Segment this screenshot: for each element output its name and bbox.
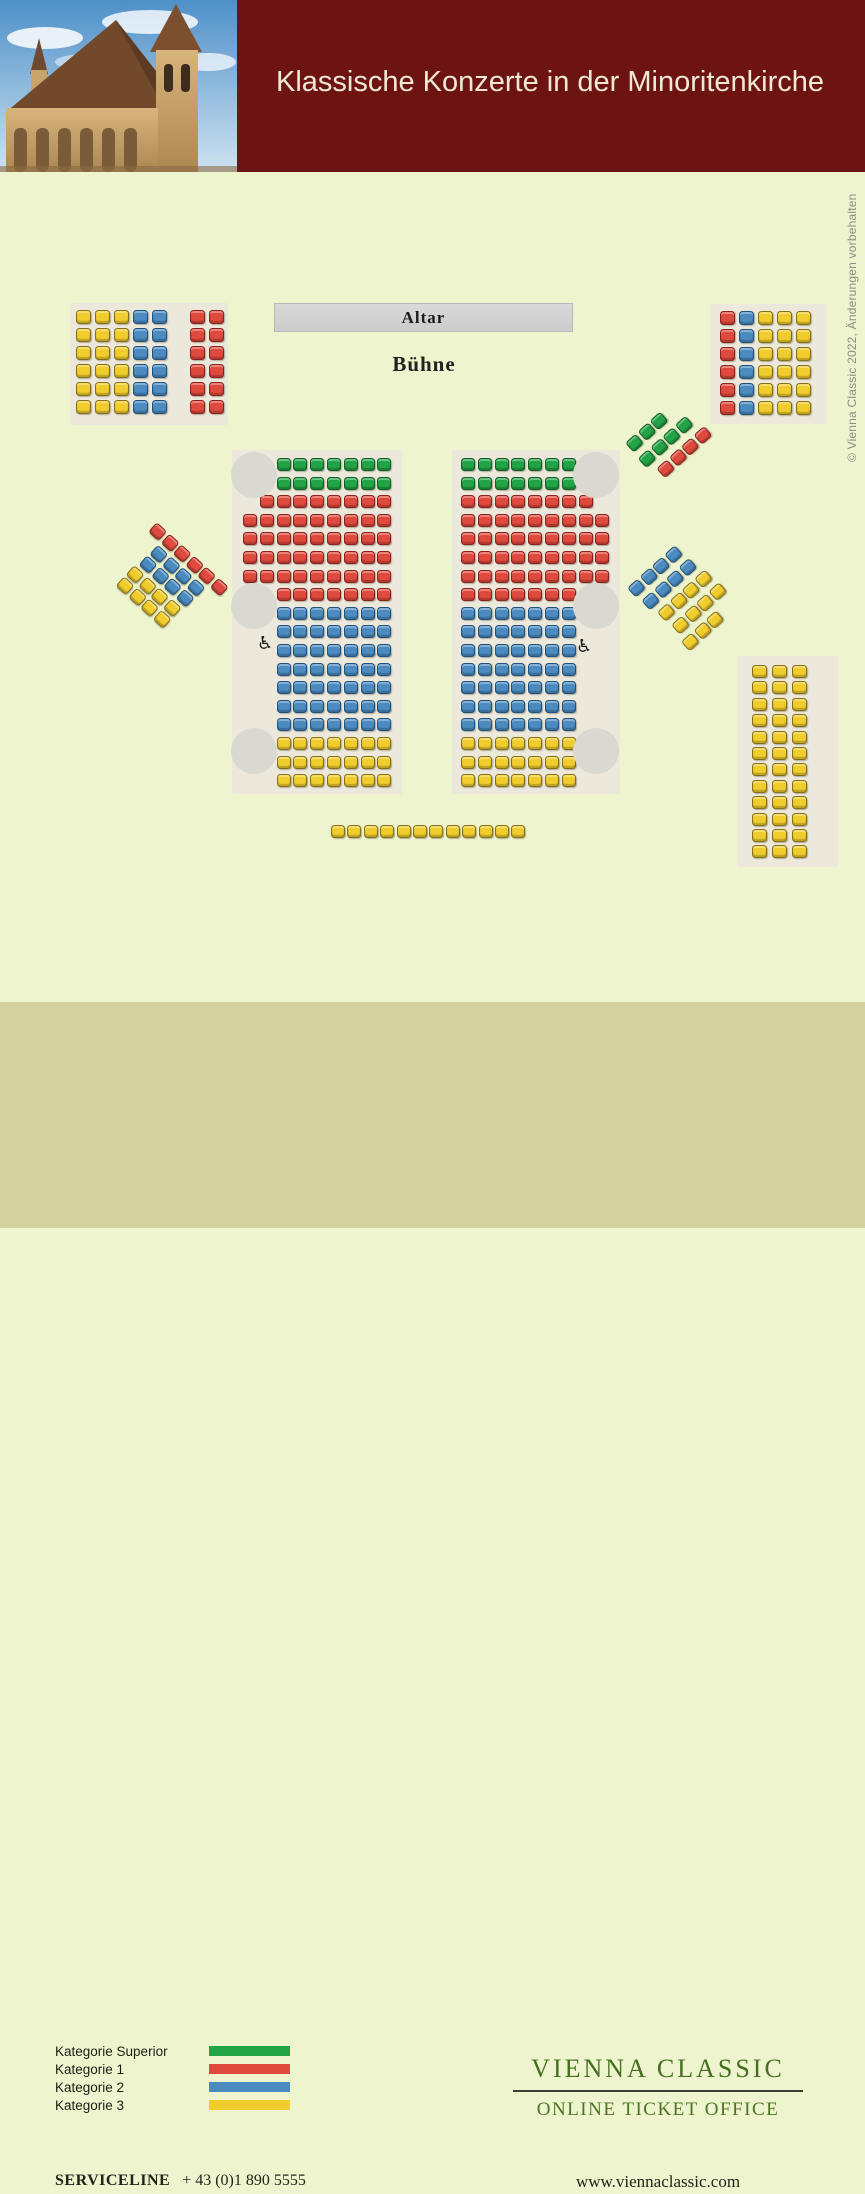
seat-kat2 (461, 700, 475, 713)
seat-kat3 (495, 737, 509, 750)
seat-kat2 (310, 681, 324, 694)
seat-kat3 (758, 401, 773, 415)
seat-kat3 (772, 763, 787, 776)
seat-kat3 (461, 774, 475, 787)
seat-kat2 (133, 328, 148, 342)
seat-kat1 (243, 532, 257, 545)
seat-kat2 (310, 663, 324, 676)
serviceline-label: SERVICELINE (55, 2172, 170, 2189)
seat-kat3 (495, 774, 509, 787)
side-right-diagonal-block (627, 538, 746, 658)
seat-kat1 (579, 532, 593, 545)
seat-kat3 (792, 731, 807, 744)
seat-superior (478, 458, 492, 471)
seat-kat3 (777, 329, 792, 343)
seat-kat3 (752, 845, 767, 858)
seat-kat2 (133, 310, 148, 324)
seat-superior (461, 477, 475, 490)
seat-kat3 (397, 825, 411, 838)
seat-kat2 (528, 700, 542, 713)
seat-kat3 (446, 825, 460, 838)
copyright-note: © Vienna Classic 2022, Änderungen vorbeh… (845, 194, 859, 462)
serviceline: SERVICELINE + 43 (0)1 890 5555 (55, 2172, 306, 2190)
seat-kat3 (796, 383, 811, 397)
seat-kat3 (361, 737, 375, 750)
seat-kat2 (310, 718, 324, 731)
seat-kat1 (260, 514, 274, 527)
seat-kat1 (478, 551, 492, 564)
seat-superior (293, 477, 307, 490)
legend-row-kat2: Kategorie 2 (55, 2078, 290, 2096)
seat-kat3 (752, 796, 767, 809)
seat-kat2 (528, 644, 542, 657)
seat-kat1 (511, 588, 525, 601)
seat-kat2 (152, 400, 167, 414)
seat-kat2 (495, 607, 509, 620)
seat-kat2 (152, 346, 167, 360)
seat-kat1 (361, 532, 375, 545)
seat-kat3 (511, 774, 525, 787)
seat-kat1 (720, 329, 735, 343)
seat-kat2 (344, 718, 358, 731)
seat-kat1 (461, 514, 475, 527)
seat-kat2 (545, 681, 559, 694)
seat-kat2 (310, 644, 324, 657)
seat-superior (361, 458, 375, 471)
seat-kat1 (344, 532, 358, 545)
seat-superior (528, 458, 542, 471)
seat-kat2 (377, 681, 391, 694)
legend-label: Kategorie 2 (55, 2080, 209, 2095)
seat-kat2 (461, 644, 475, 657)
seat-kat2 (562, 625, 576, 638)
seat-kat1 (528, 514, 542, 527)
seat-kat2 (511, 625, 525, 638)
seat-kat2 (461, 681, 475, 694)
seat-kat3 (310, 737, 324, 750)
seat-kat2 (361, 681, 375, 694)
seat-kat1 (720, 347, 735, 361)
seat-kat1 (528, 551, 542, 564)
seat-kat3 (344, 737, 358, 750)
seat-kat2 (511, 700, 525, 713)
seat-kat1 (377, 495, 391, 508)
seat-kat1 (511, 514, 525, 527)
seat-kat2 (344, 700, 358, 713)
seat-kat3 (511, 756, 525, 769)
seat-kat3 (777, 383, 792, 397)
seat-kat3 (95, 400, 110, 414)
seat-kat1 (310, 551, 324, 564)
seat-kat3 (76, 364, 91, 378)
seat-kat1 (344, 570, 358, 583)
seat-kat2 (461, 607, 475, 620)
seat-kat3 (752, 731, 767, 744)
seat-kat3 (528, 756, 542, 769)
seat-kat3 (380, 825, 394, 838)
seat-kat3 (772, 747, 787, 760)
seat-kat3 (758, 365, 773, 379)
seat-kat1 (461, 532, 475, 545)
brand-name: VIENNA CLASSIC (513, 2054, 803, 2084)
seat-superior (511, 477, 525, 490)
seat-kat1 (720, 383, 735, 397)
pillar (231, 728, 277, 774)
aisle-gap (260, 663, 277, 665)
seat-kat2 (361, 607, 375, 620)
seat-kat2 (528, 681, 542, 694)
seat-kat1 (579, 570, 593, 583)
seat-superior (495, 477, 509, 490)
seat-kat3 (277, 737, 291, 750)
seat-kat3 (95, 364, 110, 378)
seat-kat1 (209, 364, 224, 378)
seat-kat3 (95, 346, 110, 360)
seat-kat2 (377, 644, 391, 657)
seat-kat1 (511, 551, 525, 564)
seat-kat2 (377, 718, 391, 731)
seat-kat1 (344, 588, 358, 601)
seat-kat3 (461, 756, 475, 769)
seat-kat3 (461, 737, 475, 750)
seat-kat1 (545, 514, 559, 527)
seat-kat3 (792, 763, 807, 776)
side-left-diagonal-block (78, 498, 230, 646)
seat-superior (377, 458, 391, 471)
seat-kat1 (461, 588, 475, 601)
legend-label: Kategorie Superior (55, 2044, 209, 2059)
seat-kat2 (495, 681, 509, 694)
seat-kat3 (796, 365, 811, 379)
seat-kat2 (495, 644, 509, 657)
seat-kat3 (495, 756, 509, 769)
seat-kat1 (511, 532, 525, 545)
brand-divider (513, 2090, 803, 2092)
seat-kat3 (777, 365, 792, 379)
seat-kat2 (133, 364, 148, 378)
seat-kat3 (752, 813, 767, 826)
seat-kat3 (95, 310, 110, 324)
seat-kat1 (209, 400, 224, 414)
seat-kat2 (133, 346, 148, 360)
seat-kat1 (277, 588, 291, 601)
seat-kat2 (361, 644, 375, 657)
seat-superior (528, 477, 542, 490)
seat-kat1 (478, 495, 492, 508)
pillar (573, 728, 619, 774)
seat-kat3 (752, 829, 767, 842)
seat-superior (277, 477, 291, 490)
seat-kat2 (478, 700, 492, 713)
pillar (231, 452, 277, 498)
seat-kat2 (327, 644, 341, 657)
seat-kat3 (361, 774, 375, 787)
seat-kat3 (478, 756, 492, 769)
seat-superior (545, 458, 559, 471)
seat-kat2 (152, 310, 167, 324)
seat-kat3 (293, 774, 307, 787)
gallery-left-block (70, 303, 228, 425)
seat-kat1 (243, 514, 257, 527)
seat-kat1 (461, 551, 475, 564)
seat-kat1 (310, 532, 324, 545)
seat-kat3 (792, 665, 807, 678)
seat-kat1 (720, 401, 735, 415)
seat-kat2 (327, 663, 341, 676)
seat-kat3 (95, 328, 110, 342)
seat-kat1 (545, 532, 559, 545)
seat-kat2 (277, 607, 291, 620)
rear-right-block (737, 656, 838, 867)
seat-kat3 (478, 737, 492, 750)
seat-kat2 (152, 328, 167, 342)
seat-kat3 (344, 756, 358, 769)
website-link[interactable]: www.viennaclassic.com (548, 2172, 768, 2192)
seat-kat2 (293, 663, 307, 676)
seat-kat3 (310, 774, 324, 787)
seat-superior (293, 458, 307, 471)
seat-superior (344, 477, 358, 490)
seat-kat1 (495, 514, 509, 527)
seat-kat1 (595, 570, 609, 583)
seat-superior (344, 458, 358, 471)
seat-kat1 (528, 532, 542, 545)
seat-kat2 (528, 663, 542, 676)
aisle-gap (260, 681, 277, 683)
seat-kat1 (310, 570, 324, 583)
seat-kat2 (361, 718, 375, 731)
seat-kat1 (461, 495, 475, 508)
seat-kat1 (344, 514, 358, 527)
seat-kat1 (478, 532, 492, 545)
seat-kat2 (277, 644, 291, 657)
seat-kat1 (209, 310, 224, 324)
seat-kat3 (792, 698, 807, 711)
seat-kat3 (377, 756, 391, 769)
legend-color-swatch-kat3 (209, 2100, 290, 2110)
legend-row-kat1: Kategorie 1 (55, 2060, 290, 2078)
aisle-gap (171, 328, 190, 330)
seat-kat3 (772, 714, 787, 727)
seat-kat1 (562, 551, 576, 564)
seat-kat1 (190, 310, 205, 324)
seat-kat2 (293, 681, 307, 694)
wheelchair-icon: ♿ (576, 638, 592, 656)
seat-kat2 (739, 365, 754, 379)
seat-kat3 (76, 328, 91, 342)
seat-kat3 (792, 829, 807, 842)
seat-kat2 (478, 663, 492, 676)
seat-kat2 (495, 700, 509, 713)
seat-kat2 (739, 347, 754, 361)
seat-kat3 (792, 747, 807, 760)
seat-kat1 (190, 328, 205, 342)
seat-kat3 (772, 731, 787, 744)
seat-kat3 (772, 829, 787, 842)
seat-kat3 (114, 346, 129, 360)
seat-kat2 (528, 718, 542, 731)
seat-kat3 (331, 825, 345, 838)
seat-superior (361, 477, 375, 490)
seat-kat2 (739, 311, 754, 325)
seat-kat1 (595, 532, 609, 545)
seat-kat3 (377, 737, 391, 750)
seat-kat1 (562, 514, 576, 527)
seat-superior (495, 458, 509, 471)
seat-kat3 (377, 774, 391, 787)
aisle-gap (260, 774, 277, 776)
seat-kat3 (777, 401, 792, 415)
seat-kat2 (152, 382, 167, 396)
legend-color-swatch-kat2 (209, 2082, 290, 2092)
seat-kat3 (777, 311, 792, 325)
aisle-gap (171, 364, 190, 366)
aisle-gap (171, 346, 190, 348)
seat-kat1 (361, 588, 375, 601)
seat-kat1 (327, 551, 341, 564)
seat-kat1 (377, 532, 391, 545)
pillar (573, 583, 619, 629)
seat-kat2 (327, 700, 341, 713)
seat-kat3 (758, 383, 773, 397)
seat-kat1 (377, 551, 391, 564)
seat-kat1 (277, 551, 291, 564)
altar-label: Altar (274, 303, 573, 332)
wheelchair-icon: ♿ (257, 635, 273, 653)
seat-kat3 (327, 756, 341, 769)
seat-kat3 (545, 737, 559, 750)
legend-color-swatch-superior (209, 2046, 290, 2056)
seat-kat3 (479, 825, 493, 838)
seat-kat2 (495, 663, 509, 676)
legend-label: Kategorie 1 (55, 2062, 209, 2077)
seat-kat1 (511, 570, 525, 583)
seat-kat3 (758, 329, 773, 343)
pillar (231, 583, 277, 629)
seat-kat1 (545, 588, 559, 601)
seat-kat1 (377, 570, 391, 583)
seat-kat3 (545, 774, 559, 787)
seat-kat2 (528, 625, 542, 638)
seat-kat2 (377, 663, 391, 676)
seat-kat3 (310, 756, 324, 769)
aisle-gap (243, 663, 260, 665)
seat-kat2 (478, 681, 492, 694)
seat-kat1 (293, 532, 307, 545)
seat-kat3 (758, 311, 773, 325)
seat-kat2 (293, 700, 307, 713)
seat-kat1 (190, 346, 205, 360)
aisle-gap (171, 382, 190, 384)
seat-kat1 (243, 570, 257, 583)
seat-kat3 (76, 400, 91, 414)
seat-kat3 (76, 346, 91, 360)
seat-kat1 (545, 551, 559, 564)
seat-kat1 (327, 588, 341, 601)
legend-row-superior: Kategorie Superior (55, 2042, 290, 2060)
seat-kat2 (277, 700, 291, 713)
seat-kat1 (209, 328, 224, 342)
seat-kat2 (293, 607, 307, 620)
seat-kat3 (752, 714, 767, 727)
seat-superior (310, 458, 324, 471)
seat-kat2 (545, 663, 559, 676)
seat-kat3 (772, 780, 787, 793)
seat-kat1 (293, 495, 307, 508)
seat-kat1 (478, 588, 492, 601)
seat-kat2 (377, 700, 391, 713)
seat-kat1 (293, 588, 307, 601)
seat-kat3 (413, 825, 427, 838)
seat-kat2 (277, 625, 291, 638)
seat-kat3 (796, 329, 811, 343)
seat-kat2 (562, 681, 576, 694)
seat-kat1 (277, 570, 291, 583)
seat-kat3 (796, 311, 811, 325)
seat-kat2 (545, 700, 559, 713)
seat-kat2 (545, 625, 559, 638)
seat-kat3 (772, 698, 787, 711)
seat-kat2 (327, 681, 341, 694)
seat-kat3 (772, 845, 787, 858)
seat-kat2 (344, 663, 358, 676)
seat-kat1 (310, 514, 324, 527)
seat-kat2 (327, 625, 341, 638)
seat-kat2 (377, 625, 391, 638)
seat-kat3 (528, 737, 542, 750)
seat-kat2 (562, 663, 576, 676)
legend-label: Kategorie 3 (55, 2098, 209, 2113)
seat-kat2 (739, 383, 754, 397)
seat-kat3 (752, 763, 767, 776)
pillar (573, 452, 619, 498)
seat-kat1 (562, 495, 576, 508)
seat-kat2 (277, 681, 291, 694)
seat-kat1 (361, 551, 375, 564)
seat-kat3 (429, 825, 443, 838)
seat-kat2 (361, 700, 375, 713)
stage-label: Bühne (324, 352, 524, 377)
seat-kat1 (327, 532, 341, 545)
seat-superior (478, 477, 492, 490)
seat-kat2 (478, 718, 492, 731)
seat-kat2 (293, 644, 307, 657)
seat-kat2 (310, 607, 324, 620)
seat-kat1 (277, 495, 291, 508)
seat-kat3 (545, 756, 559, 769)
seat-kat3 (792, 796, 807, 809)
seat-kat1 (495, 570, 509, 583)
seat-kat2 (562, 644, 576, 657)
seat-kat1 (327, 570, 341, 583)
seat-kat3 (758, 347, 773, 361)
seat-kat1 (293, 514, 307, 527)
seat-kat1 (495, 588, 509, 601)
seat-kat2 (495, 718, 509, 731)
seat-kat3 (752, 681, 767, 694)
seat-kat2 (152, 364, 167, 378)
seat-kat2 (327, 718, 341, 731)
seat-kat2 (511, 607, 525, 620)
seat-superior (277, 458, 291, 471)
seat-kat2 (293, 718, 307, 731)
seat-kat2 (739, 401, 754, 415)
seat-kat1 (361, 495, 375, 508)
seat-kat2 (344, 607, 358, 620)
seat-kat3 (772, 681, 787, 694)
seat-kat3 (752, 665, 767, 678)
seat-kat1 (293, 570, 307, 583)
